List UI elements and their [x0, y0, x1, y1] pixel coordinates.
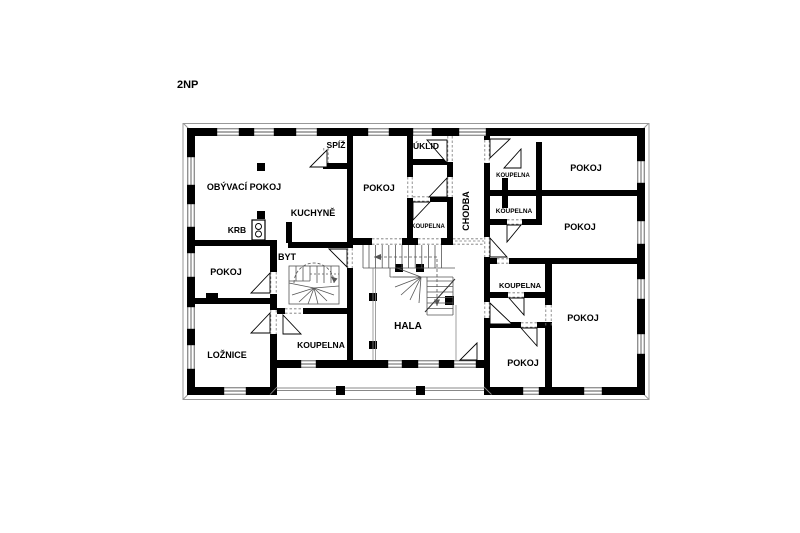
wall — [490, 190, 637, 196]
wall — [490, 258, 497, 264]
room-label-pokoj-2: POKOJ — [564, 222, 596, 232]
room-label-pokoj-dolni-maly: POKOJ — [507, 358, 539, 368]
room-label-krb: KRB — [228, 225, 246, 235]
wall — [536, 142, 542, 190]
wall — [270, 294, 277, 310]
wall — [545, 327, 552, 395]
wall — [270, 240, 277, 272]
wall — [413, 159, 447, 165]
wall — [447, 197, 453, 240]
room-label-pokoj-1: POKOJ — [570, 163, 602, 173]
wall — [524, 292, 545, 298]
door-swing — [251, 273, 270, 293]
terrace-post — [336, 386, 345, 395]
wall — [537, 322, 552, 328]
wall — [502, 178, 508, 208]
wall — [288, 242, 353, 248]
wall — [490, 292, 508, 298]
room-label-kuchyne: KUCHYNĚ — [291, 207, 336, 218]
wall — [353, 360, 387, 368]
wall — [441, 238, 453, 245]
room-label-hala: HALA — [394, 321, 422, 332]
fireplace-stove-icon — [252, 220, 265, 240]
wall — [484, 257, 490, 302]
room-label-loznice: LOŽNICE — [207, 349, 247, 360]
wall — [347, 268, 353, 368]
room-label-pokoj-dolni-velky: POKOJ — [567, 313, 599, 323]
door-swing — [490, 303, 512, 324]
door-swing — [310, 150, 327, 167]
winder-fan-tread — [314, 286, 339, 288]
door-swing — [509, 298, 524, 315]
wall — [403, 360, 417, 368]
stair-winder-tread — [401, 277, 421, 295]
room-label-chodba: CHODBA — [461, 191, 471, 231]
room-label-koupelna-2: KOUPELNA — [496, 208, 533, 215]
floor-plan-drawing: 2NP OBÝVACÍ POKOJ SPÍŽ ÚKLID POKOJ KUCHY… — [0, 0, 800, 533]
wall — [484, 318, 490, 395]
door-swing — [490, 238, 507, 257]
room-label-pokoj-levy: POKOJ — [210, 267, 242, 277]
winder-fan-tread — [289, 283, 314, 288]
room-label-spiz: SPÍŽ — [327, 139, 346, 150]
room-label-koupelna-byt: KOUPELNA — [297, 340, 345, 350]
wall — [347, 136, 353, 248]
wall — [440, 360, 453, 368]
winder-arrow — [331, 277, 338, 284]
wall — [484, 163, 490, 237]
stair-walk-line — [374, 257, 437, 306]
wall — [353, 238, 372, 245]
door-swing — [283, 315, 301, 334]
wall — [484, 387, 645, 395]
wall — [206, 293, 218, 304]
door-swing — [429, 178, 447, 197]
wall — [257, 163, 265, 171]
room-label-byt: BYT — [278, 252, 297, 262]
floor-plan-canvas: 2NP OBÝVACÍ POKOJ SPÍŽ ÚKLID POKOJ KUCHY… — [0, 0, 800, 533]
wall — [286, 222, 292, 243]
door-swing — [521, 328, 537, 346]
door-swing — [251, 313, 270, 333]
wall — [484, 136, 490, 140]
stair-break-line — [425, 279, 455, 312]
terrace-post — [416, 386, 425, 395]
wall — [407, 198, 413, 245]
stair-arrow — [374, 254, 381, 260]
door-swing — [490, 139, 510, 158]
room-label-koupelna-stredni: KOUPELNA — [411, 224, 445, 230]
door-swing — [460, 343, 477, 360]
wall — [277, 308, 285, 314]
door-swing — [329, 249, 347, 267]
room-label-koupelna-1: KOUPELNA — [496, 173, 530, 179]
room-label-pokoj-stredni: POKOJ — [363, 183, 395, 193]
room-label-obyvaci-pokoj: OBÝVACÍ POKOJ — [207, 181, 281, 192]
wall — [402, 238, 418, 245]
wall — [277, 360, 301, 368]
door-swing — [413, 202, 430, 220]
room-label-uklid: ÚKLID — [413, 140, 439, 151]
winder-staircase — [289, 263, 339, 304]
floor-title: 2NP — [177, 79, 198, 91]
winder-outline — [289, 266, 339, 304]
wall — [509, 258, 637, 264]
wall — [522, 219, 542, 225]
door-swing — [504, 149, 521, 168]
wall — [447, 162, 453, 177]
wall — [195, 240, 277, 246]
wall — [490, 219, 507, 225]
room-label-koupelna-dolni: KOUPELNA — [499, 281, 542, 290]
wall — [270, 334, 277, 395]
wall — [303, 308, 347, 314]
wall — [545, 258, 552, 305]
wall — [257, 211, 265, 219]
door-swing — [507, 225, 521, 242]
terrace — [270, 386, 492, 395]
